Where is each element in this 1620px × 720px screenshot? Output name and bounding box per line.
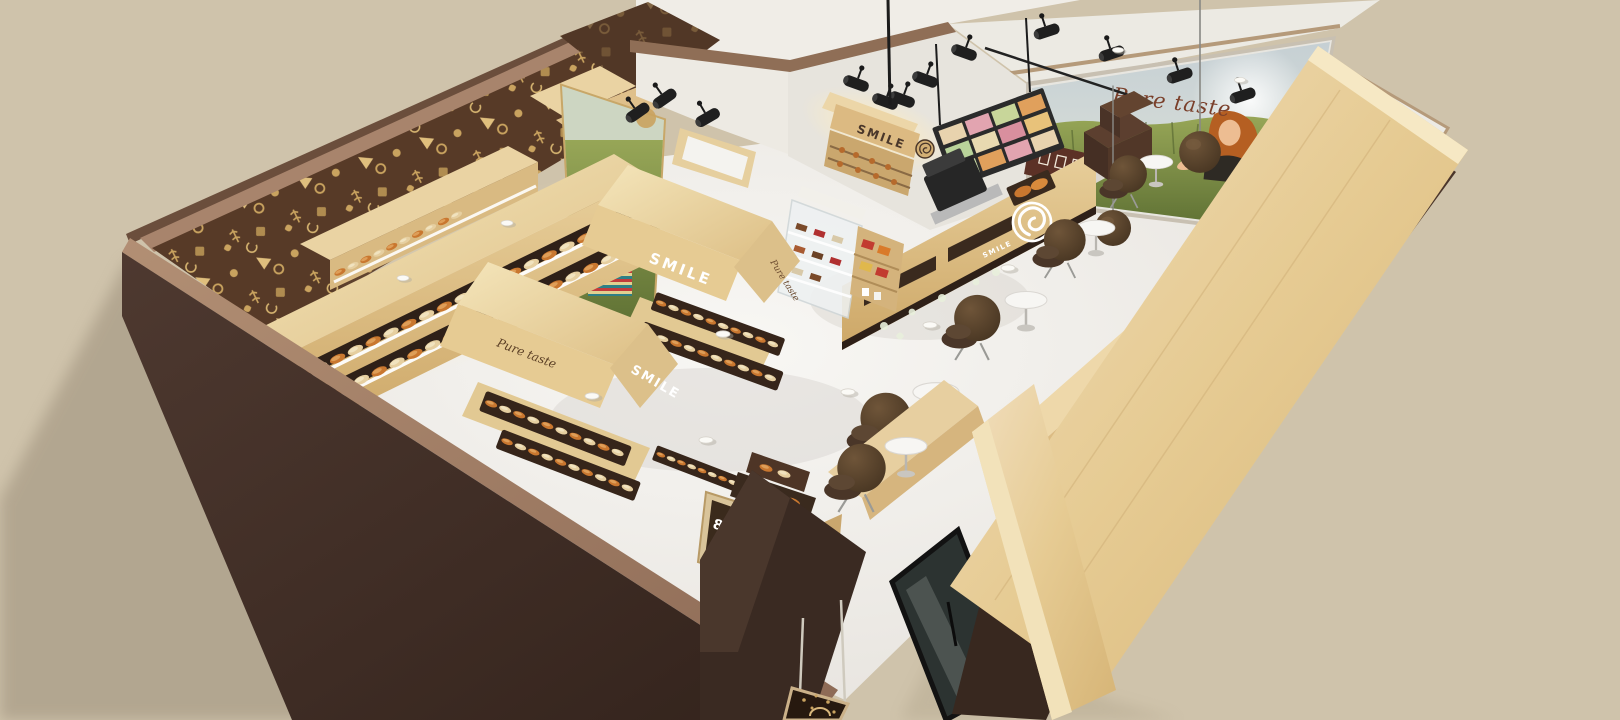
scene-canvas: Pure taste SMILE	[0, 0, 1620, 720]
bakery-interior-render: Pure taste SMILE	[0, 0, 1620, 720]
